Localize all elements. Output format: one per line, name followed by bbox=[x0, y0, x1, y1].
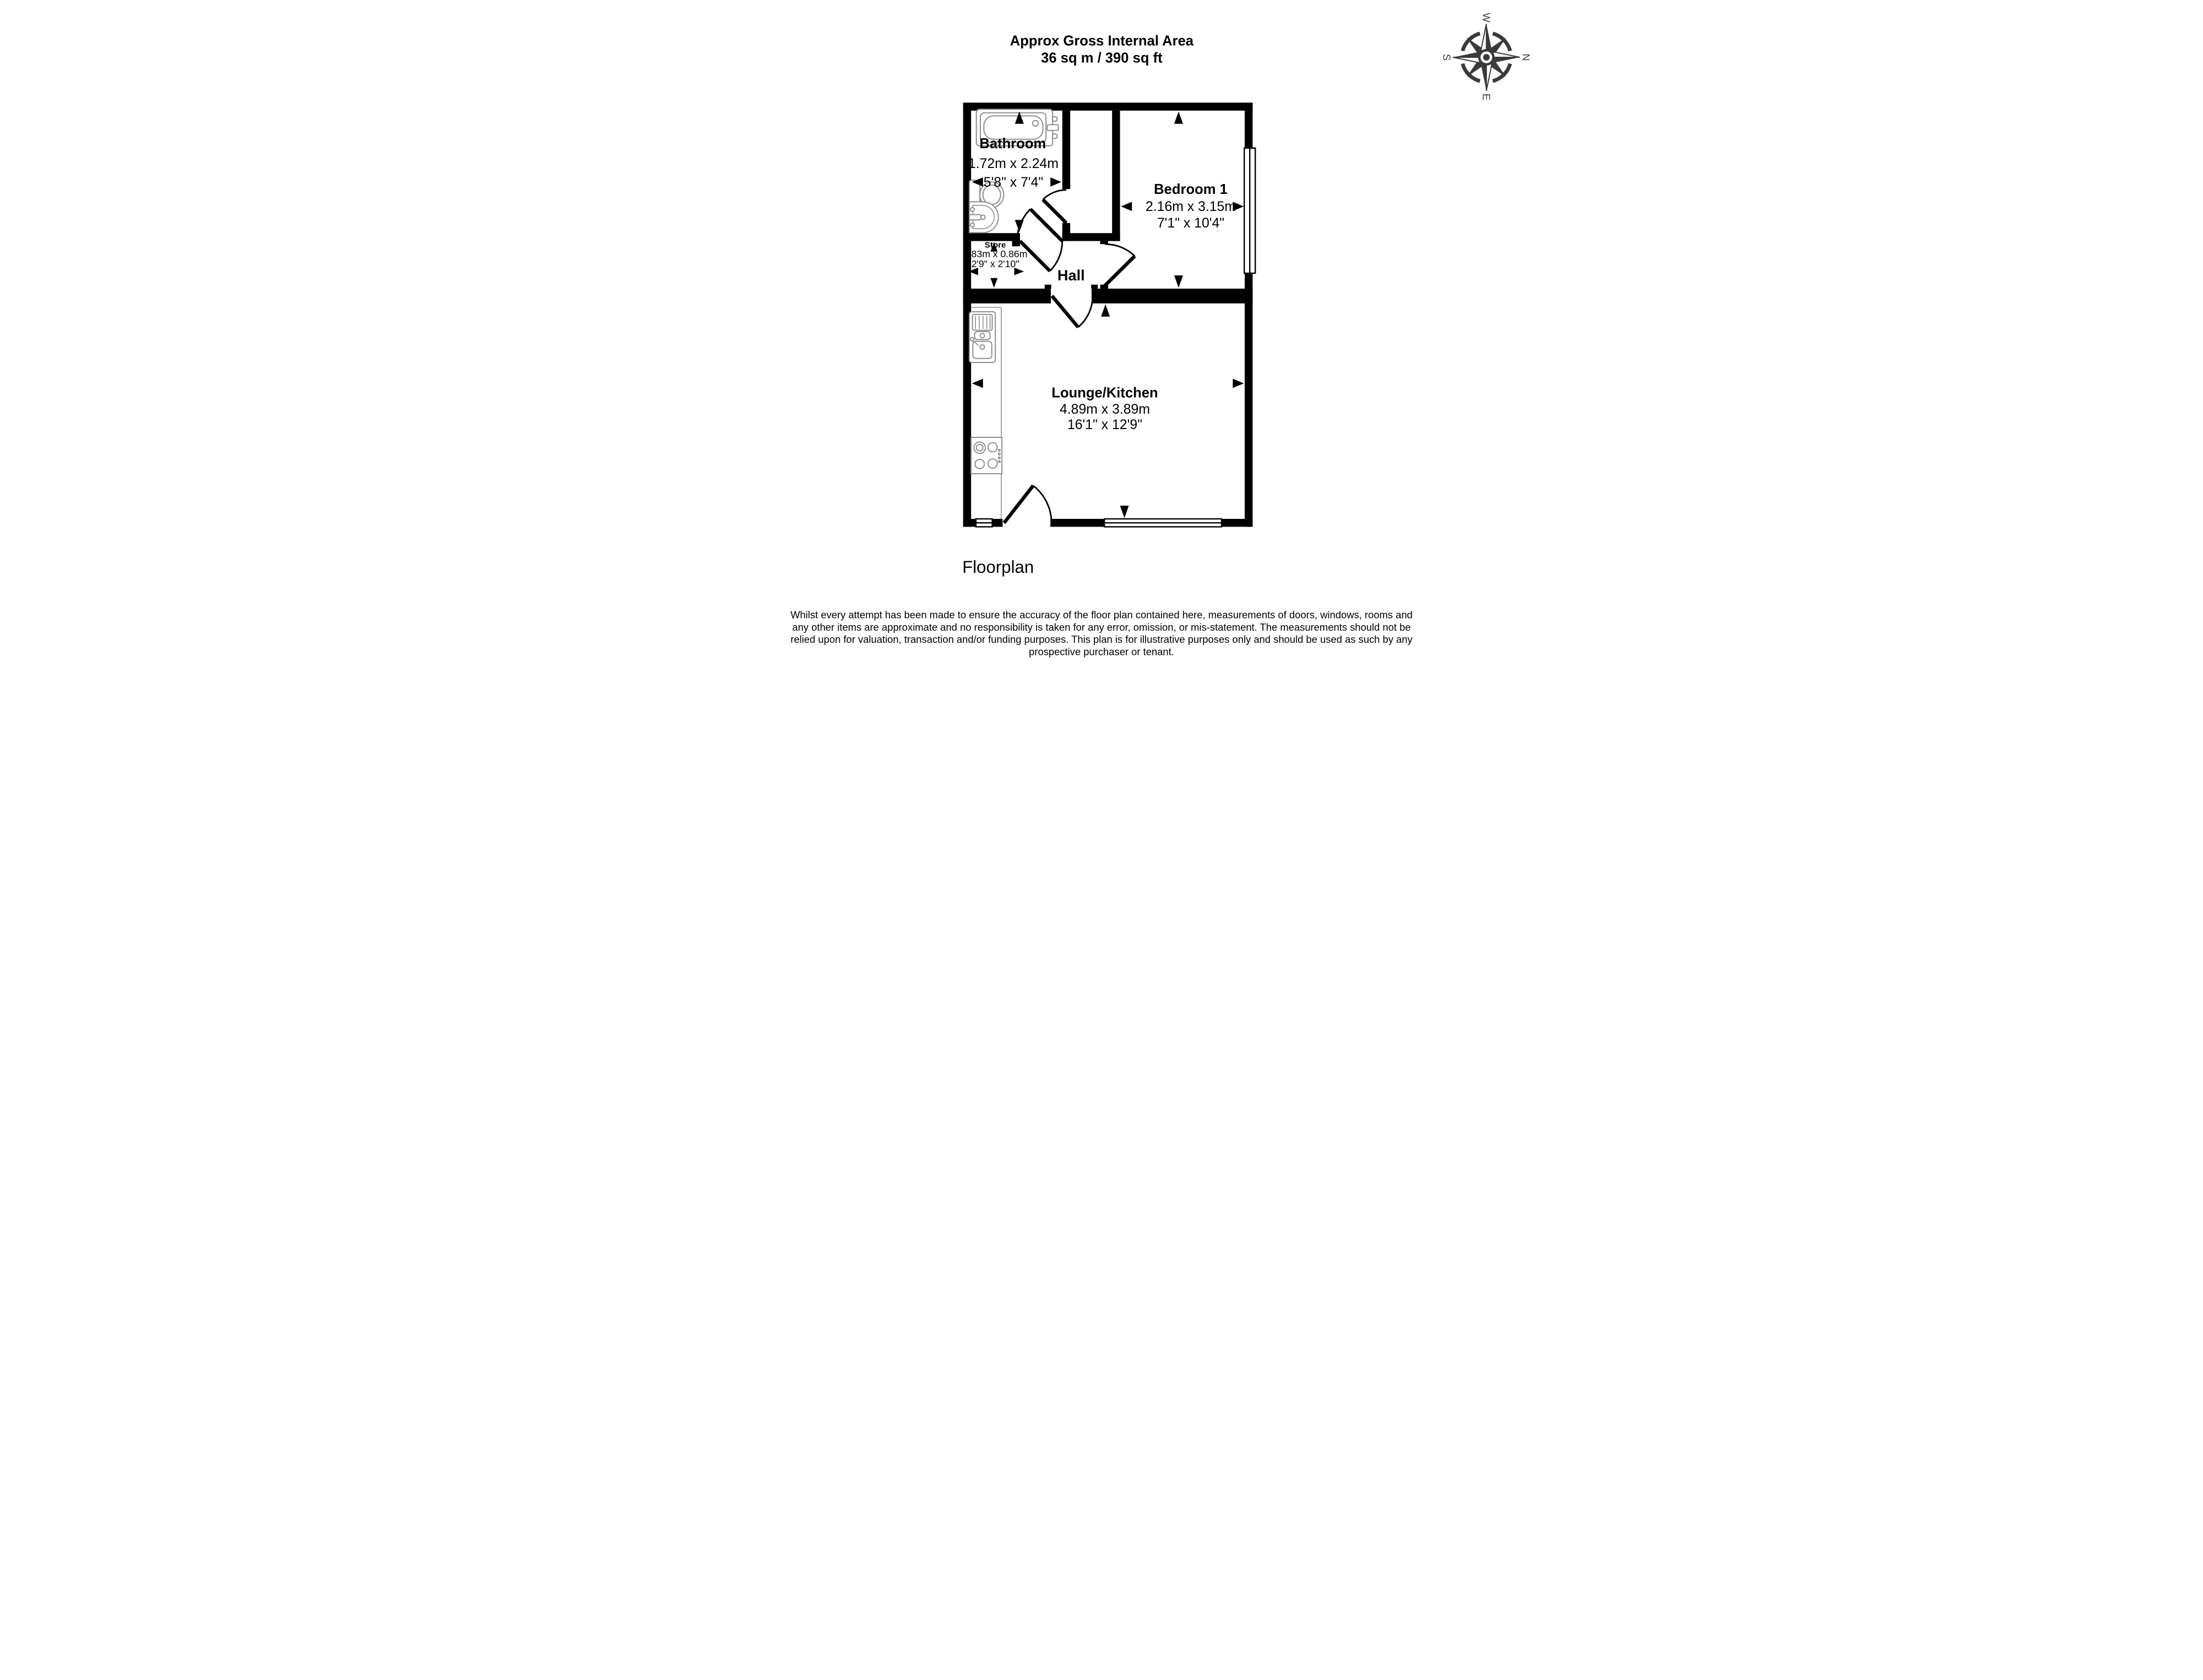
kitchen-sink-icon bbox=[969, 312, 995, 362]
title-line-2: 36 sq m / 390 sq ft bbox=[1041, 51, 1163, 66]
store-imperial: 2'9" x 2'10" bbox=[972, 258, 1019, 269]
wall-bathroom-right bbox=[1062, 111, 1070, 189]
bathroom-door bbox=[1043, 190, 1066, 223]
bedroom-window bbox=[1244, 148, 1255, 273]
arrow-right-icon bbox=[1233, 202, 1244, 211]
wall-hall-lounge-right bbox=[1092, 289, 1252, 304]
compass-hub-dot bbox=[1483, 54, 1490, 61]
lounge-name: Lounge/Kitchen bbox=[1051, 386, 1158, 401]
title-line-1: Approx Gross Internal Area bbox=[1010, 33, 1194, 48]
wall-outer-bottom-3 bbox=[1050, 519, 1104, 527]
hall-name: Hall bbox=[1057, 267, 1085, 284]
bathroom-basin-icon bbox=[969, 202, 999, 232]
wall-bathroom-store-divider bbox=[963, 233, 1020, 241]
arrow-left-icon bbox=[972, 379, 983, 388]
lounge-metric: 4.89m x 3.89m bbox=[1060, 402, 1150, 417]
lounge-large-window bbox=[1104, 519, 1222, 527]
wall-outer-right-upper bbox=[1245, 102, 1252, 148]
wall-lounge-door-nub-left bbox=[1045, 285, 1051, 289]
entrance-door bbox=[1004, 486, 1051, 523]
compass-rose-icon: N E S W bbox=[1441, 13, 1532, 100]
bathroom-imperial: 5'8" x 7'4" bbox=[984, 175, 1043, 190]
arrow-down-icon bbox=[1120, 506, 1129, 518]
arrow-down-icon bbox=[990, 278, 997, 288]
disclaimer: Whilst every attempt has been made to en… bbox=[790, 609, 1413, 657]
arrow-left-icon bbox=[1121, 202, 1132, 211]
lounge-label: Lounge/Kitchen 4.89m x 3.89m 16'1" x 12'… bbox=[1051, 386, 1158, 433]
wall-outer-bottom-4 bbox=[1222, 519, 1252, 527]
wall-outer-right-lower bbox=[1245, 273, 1252, 527]
disclaimer-line: any other items are approximate and no r… bbox=[792, 621, 1410, 633]
wall-lounge-door-nub-right bbox=[1091, 285, 1098, 289]
wall-outer-bottom-1 bbox=[963, 519, 976, 527]
bathroom-metric: 1.72m x 2.24m bbox=[968, 156, 1059, 171]
disclaimer-line: relied upon for valuation, transaction a… bbox=[790, 633, 1413, 645]
arrow-up-icon bbox=[1101, 304, 1110, 316]
wall-outer-bottom-2 bbox=[992, 519, 1003, 527]
arrow-down-icon bbox=[1174, 275, 1183, 288]
compass-label-south: S bbox=[1441, 54, 1452, 61]
wall-store-hinge-block bbox=[1012, 241, 1020, 247]
compass-label-north: N bbox=[1520, 53, 1532, 61]
bedroom-label: Bedroom 1 2.16m x 3.15m 7'1" x 10'4" bbox=[1146, 182, 1236, 231]
kitchen-fixtures bbox=[969, 307, 1002, 519]
page-title: Approx Gross Internal Area 36 sq m / 390… bbox=[1010, 33, 1194, 66]
arrow-right-icon bbox=[1050, 177, 1061, 187]
bedroom-door bbox=[1104, 244, 1135, 286]
bathroom-name: Bathroom bbox=[979, 136, 1046, 151]
disclaimer-line: prospective purchaser or tenant. bbox=[1029, 646, 1174, 658]
wall-hall-lounge-left bbox=[963, 289, 1051, 304]
arrow-down-icon bbox=[1015, 220, 1024, 232]
room-labels: Bathroom 1.72m x 2.24m 5'8" x 7'4" Bedro… bbox=[963, 136, 1236, 432]
floorplan-page: Approx Gross Internal Area 36 sq m / 390… bbox=[661, 0, 1542, 672]
wall-bedroom-left bbox=[1112, 111, 1120, 241]
compass-label-east: E bbox=[1480, 94, 1492, 100]
hob-icon bbox=[971, 437, 1002, 474]
arrow-right-icon bbox=[1233, 379, 1244, 388]
lounge-door bbox=[1052, 296, 1093, 327]
bedroom-name: Bedroom 1 bbox=[1154, 182, 1228, 197]
lounge-imperial: 16'1" x 12'9" bbox=[1067, 418, 1142, 432]
lounge-small-window bbox=[976, 519, 992, 527]
bedroom-metric: 2.16m x 3.15m bbox=[1146, 199, 1236, 214]
arrow-up-icon bbox=[1174, 111, 1183, 123]
disclaimer-line: Whilst every attempt has been made to en… bbox=[790, 609, 1413, 620]
bedroom-imperial: 7'1" x 10'4" bbox=[1157, 216, 1224, 231]
dimension-arrows bbox=[968, 111, 1244, 518]
compass-label-west: W bbox=[1480, 13, 1492, 23]
floorplan-caption: Floorplan bbox=[962, 557, 1034, 577]
floorplan-canvas: Approx Gross Internal Area 36 sq m / 390… bbox=[661, 0, 1542, 672]
wall-corridor-bottom bbox=[1062, 233, 1120, 241]
